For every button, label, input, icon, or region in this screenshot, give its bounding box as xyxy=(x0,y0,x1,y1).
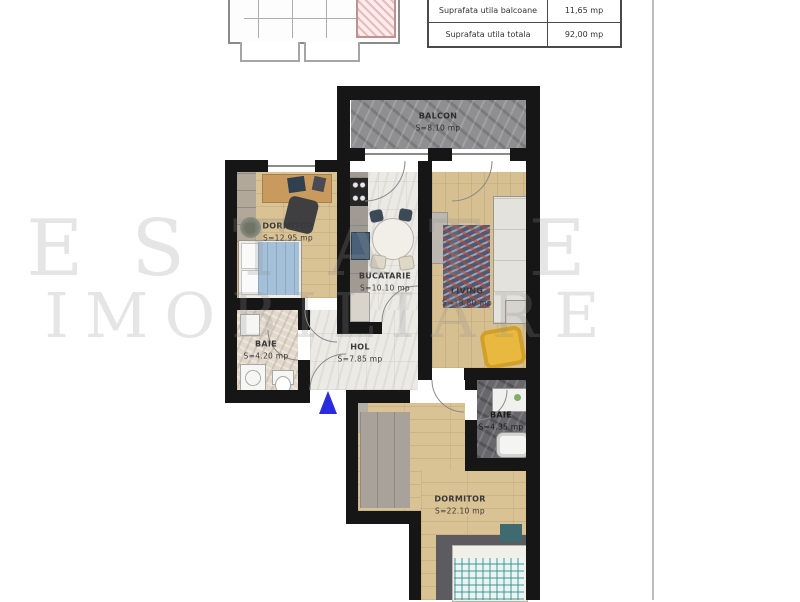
wall xyxy=(428,148,452,161)
room-label-bathroom2: BAIE S=4.35 mp xyxy=(479,409,524,432)
highlighted-unit xyxy=(356,0,396,38)
room-area: S=12.95 mp xyxy=(262,232,313,243)
kitchen-cabinet xyxy=(350,292,370,322)
page-divider-line xyxy=(652,0,654,600)
entrance-arrow-marker xyxy=(319,391,337,414)
wall xyxy=(350,148,365,161)
room-area: S=4.35 mp xyxy=(479,421,524,432)
nightstand xyxy=(500,524,522,542)
room-area: S=4.20 mp xyxy=(244,350,289,361)
sofa-ottoman xyxy=(505,300,528,324)
pillow xyxy=(241,243,259,269)
faucet xyxy=(514,394,521,401)
room-name: HOL xyxy=(350,342,370,351)
dining-chair xyxy=(398,255,415,271)
balcony-door-threshold xyxy=(365,153,428,155)
location-mini-plan xyxy=(228,0,400,44)
room-name: BAIE xyxy=(490,410,512,419)
room-name: BUCATARIE xyxy=(359,271,411,280)
wall xyxy=(337,322,382,334)
mini-wall xyxy=(326,0,327,38)
room-name: BAIE xyxy=(255,339,277,348)
row-label: Suprafata utila balcoane xyxy=(428,0,548,23)
wall xyxy=(225,160,237,403)
bathtub xyxy=(496,432,530,458)
wall xyxy=(337,86,350,334)
table-row: Suprafata utila totala 92,00 mp xyxy=(428,23,621,48)
wall xyxy=(315,160,337,172)
wall xyxy=(225,390,310,403)
floorplan-page: Suprafata utila balcoane 11,65 mp Supraf… xyxy=(0,0,800,600)
bathroom-sink xyxy=(240,314,260,336)
room-area: S=7.85 mp xyxy=(338,353,383,364)
balcony-door-threshold xyxy=(452,153,510,155)
row-value: 92,00 mp xyxy=(548,23,622,48)
room-name: LIVING xyxy=(451,286,483,295)
room-name: DORMITOR xyxy=(262,221,313,230)
mini-wall xyxy=(292,0,293,38)
row-label: Suprafata utila totala xyxy=(428,23,548,48)
wall xyxy=(298,310,310,330)
row-value: 11,65 mp xyxy=(548,0,622,23)
wall xyxy=(465,458,540,471)
window xyxy=(268,165,315,167)
wall xyxy=(464,368,540,380)
kitchen-sink xyxy=(351,232,370,260)
blanket xyxy=(258,242,299,295)
wall xyxy=(346,390,358,523)
plant xyxy=(240,217,261,238)
room-label-bathroom1: BAIE S=4.20 mp xyxy=(244,338,289,361)
wall xyxy=(418,161,432,368)
area-summary-table: Suprafata utila balcoane 11,65 mp Supraf… xyxy=(427,0,622,48)
wall xyxy=(337,86,540,100)
pillow xyxy=(241,270,259,295)
washing-machine xyxy=(240,364,266,392)
room-area: S=10.10 mp xyxy=(359,282,411,293)
armchair xyxy=(479,325,527,371)
wall xyxy=(346,511,421,524)
room-label-bedroom1: DORMITOR S=12.95 mp xyxy=(262,220,313,243)
room-label-hallway: HOL S=7.85 mp xyxy=(338,341,383,364)
room-area: S=8.10 mp xyxy=(416,122,461,133)
room-label-bedroom2: DORMITOR S=22.10 mp xyxy=(434,493,485,516)
wall xyxy=(526,86,540,600)
wall xyxy=(225,298,305,310)
room-name: DORMITOR xyxy=(434,494,485,503)
table-row: Suprafata utila balcoane 11,65 mp xyxy=(428,0,621,23)
dining-chair xyxy=(398,208,413,222)
corridor-wardrobe xyxy=(360,412,410,508)
room-name: BALCON xyxy=(419,111,458,120)
stove xyxy=(350,178,368,206)
laptop xyxy=(287,176,306,193)
mini-balcony-stub xyxy=(304,42,360,62)
room-area: S=18.80 mp xyxy=(442,297,492,308)
wall xyxy=(409,524,421,600)
room-label-living: LIVING S=18.80 mp xyxy=(442,285,492,308)
room-label-balcony: BALCON S=8.10 mp xyxy=(416,110,461,133)
mini-wall xyxy=(244,18,356,19)
wall xyxy=(465,380,477,390)
dining-table xyxy=(372,218,414,260)
room-area: S=22.10 mp xyxy=(434,505,485,516)
wall xyxy=(418,368,432,380)
wall xyxy=(510,148,526,161)
dining-chair xyxy=(370,254,387,270)
mini-wall xyxy=(258,0,259,38)
mini-balcony-stub xyxy=(240,42,300,62)
bed2-blanket xyxy=(454,558,524,600)
room-label-kitchen: BUCATARIE S=10.10 mp xyxy=(359,270,411,293)
